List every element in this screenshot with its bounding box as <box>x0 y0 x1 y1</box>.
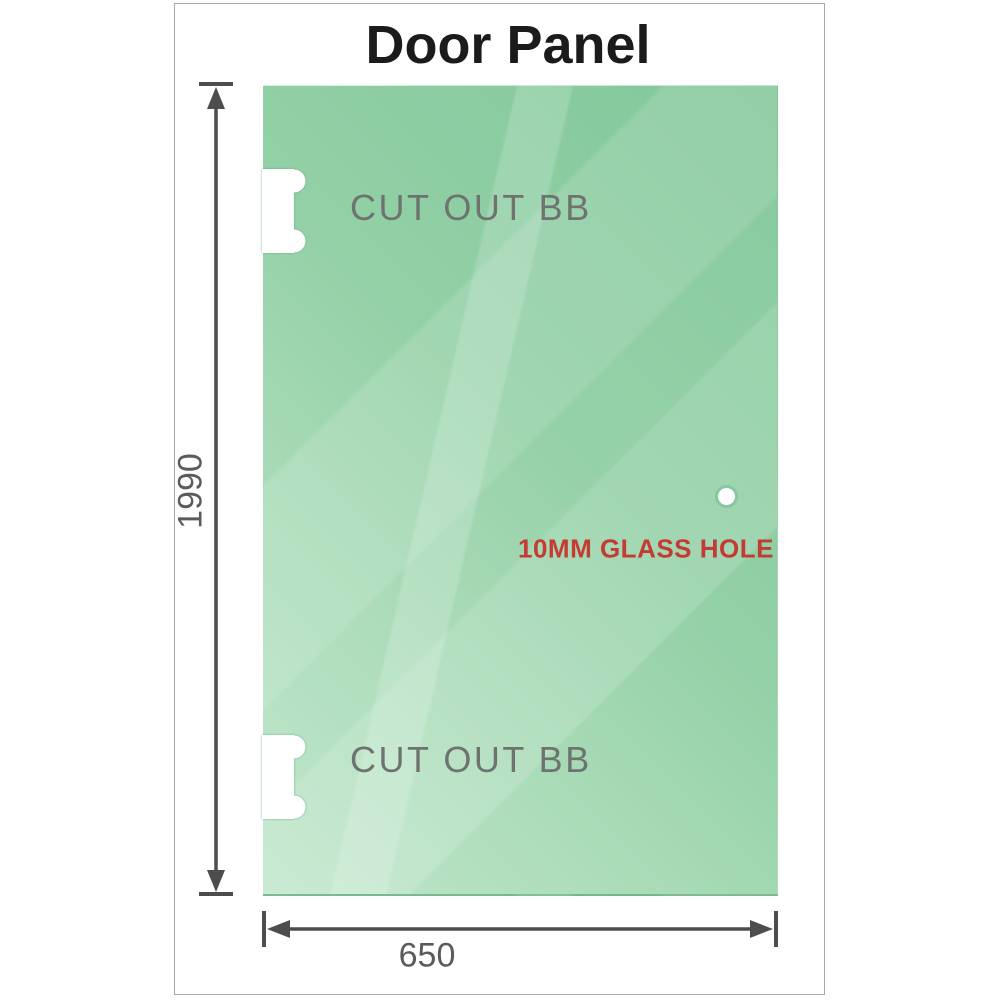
glass-hole-label: 10MM GLASS HOLE <box>518 534 774 565</box>
width-dimension <box>264 911 776 947</box>
cutout-bottom-label: CUT OUT BB <box>350 739 592 781</box>
width-dimension-label: 650 <box>399 937 456 976</box>
diagram-canvas: Door Panel 1990 650 CUT OUT BB <box>0 0 1000 1000</box>
dimension-annotations <box>0 0 1000 1000</box>
arrow-up-icon <box>207 87 225 109</box>
height-dimension-label: 1990 <box>172 453 211 529</box>
arrow-right-icon <box>750 920 773 938</box>
cutout-top-label: CUT OUT BB <box>350 187 592 229</box>
arrow-down-icon <box>207 870 225 892</box>
arrow-left-icon <box>267 920 290 938</box>
